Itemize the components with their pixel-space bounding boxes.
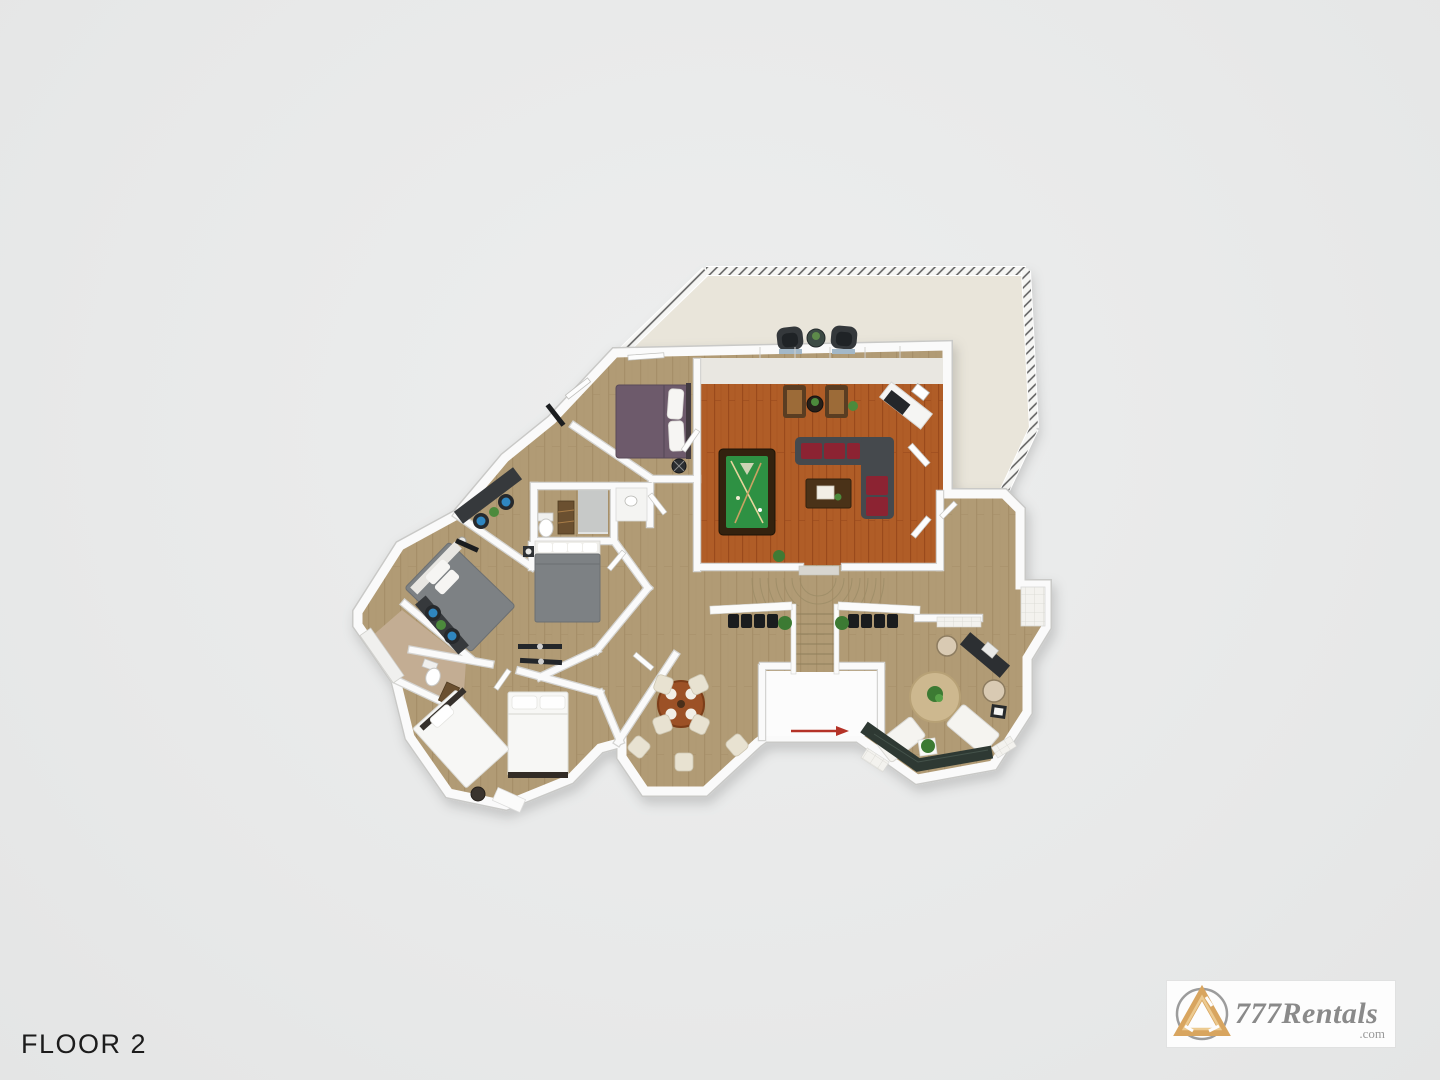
gallery-chair-5	[848, 614, 859, 628]
stair-rail-right	[834, 604, 839, 674]
gameroom-plant	[848, 401, 858, 411]
shower-pan	[578, 489, 608, 534]
gameroom-plant-2	[773, 550, 785, 562]
office-chair-2-seat	[477, 517, 486, 526]
gameroom-mat	[799, 566, 839, 575]
bay-armchair	[983, 680, 1005, 702]
bar-table-plant	[811, 398, 819, 406]
sofa-cushion-1	[801, 443, 822, 459]
nightstand-mid-lamp	[526, 549, 532, 555]
coffee-table-plant	[835, 494, 842, 501]
stair-flight	[796, 606, 834, 672]
deck-table-plant	[812, 332, 820, 340]
bath1-sink	[625, 496, 637, 506]
deck-mat-right	[832, 349, 855, 354]
dining-centerpiece	[677, 700, 685, 708]
deck-chair-left-seat	[781, 332, 798, 348]
floorplan-canvas: FLOOR 2 777Rentals .com	[0, 0, 1440, 1080]
bath1-toilet	[539, 519, 553, 537]
right-balcony-tiles	[1021, 587, 1045, 626]
bar-chair-2-slats	[829, 390, 844, 414]
logo-tld-text: .com	[1359, 1026, 1385, 1042]
bedroom-left-plant	[436, 620, 446, 630]
bath1-wicker	[558, 501, 574, 534]
bed-guest-2-pillow-2	[540, 696, 565, 709]
bed-master-pillow-2	[668, 421, 685, 452]
stair-rail-left	[791, 604, 796, 674]
bedroom-left-chair-1-seat	[429, 609, 438, 618]
side-chair-2	[675, 753, 693, 771]
bed-mid-pillow-2	[553, 543, 567, 552]
sofa-cushion-5	[866, 497, 888, 516]
ceiling-fan-2-hub	[538, 659, 544, 665]
logo-badge: 777Rentals .com	[1167, 981, 1395, 1047]
gallery-chair-4	[767, 614, 778, 628]
floorplan-svg	[0, 0, 1440, 1080]
bay-desk-chair	[937, 636, 957, 656]
bed-guest-2-foot	[508, 772, 568, 778]
gallery-chair-1	[728, 614, 739, 628]
logo-brand-text: 777Rentals	[1235, 997, 1378, 1031]
void-opening	[763, 671, 881, 736]
bed-guest-2-pillow-1	[512, 696, 537, 709]
bay-side-frame	[994, 707, 1004, 715]
gallery-chair-6	[861, 614, 872, 628]
pool-ball-2	[736, 496, 740, 500]
floor-label: FLOOR 2	[21, 1029, 147, 1060]
bed-mid-pillow-4	[583, 543, 597, 552]
bed-master-pillow-1	[667, 389, 684, 420]
office-plant	[489, 507, 499, 517]
office-chair-1-seat	[502, 498, 511, 507]
gallery-chair-2	[741, 614, 752, 628]
gallery-chair-8	[887, 614, 898, 628]
bay-tile-strip	[937, 617, 981, 627]
coffee-table-tray	[817, 486, 834, 499]
sofa-cushion-2	[824, 443, 845, 459]
stair-plant-right	[835, 616, 849, 630]
bedroom-stool	[471, 787, 485, 801]
bed-mid-pillow-3	[568, 543, 582, 552]
gallery-chair-3	[754, 614, 765, 628]
stair-plant-left	[778, 616, 792, 630]
gallery-chair-7	[874, 614, 885, 628]
pool-ball-1	[758, 508, 762, 512]
gameroom-walkway	[701, 358, 943, 384]
bar-chair-1-slats	[787, 390, 802, 414]
deck-mat-left	[779, 349, 802, 354]
bay-plantbox-plant	[921, 739, 935, 753]
bedroom-left-chair-2-seat	[448, 632, 457, 641]
sofa-cushion-3	[847, 443, 860, 459]
logo-triangle-icon	[1173, 985, 1231, 1043]
ceiling-fan-1-hub	[537, 644, 543, 650]
deck-chair-right-seat	[835, 331, 852, 346]
sitting-rug-plant-2	[935, 694, 943, 702]
bed-mid-pillow-1	[538, 543, 552, 552]
sofa-cushion-4	[866, 476, 888, 495]
